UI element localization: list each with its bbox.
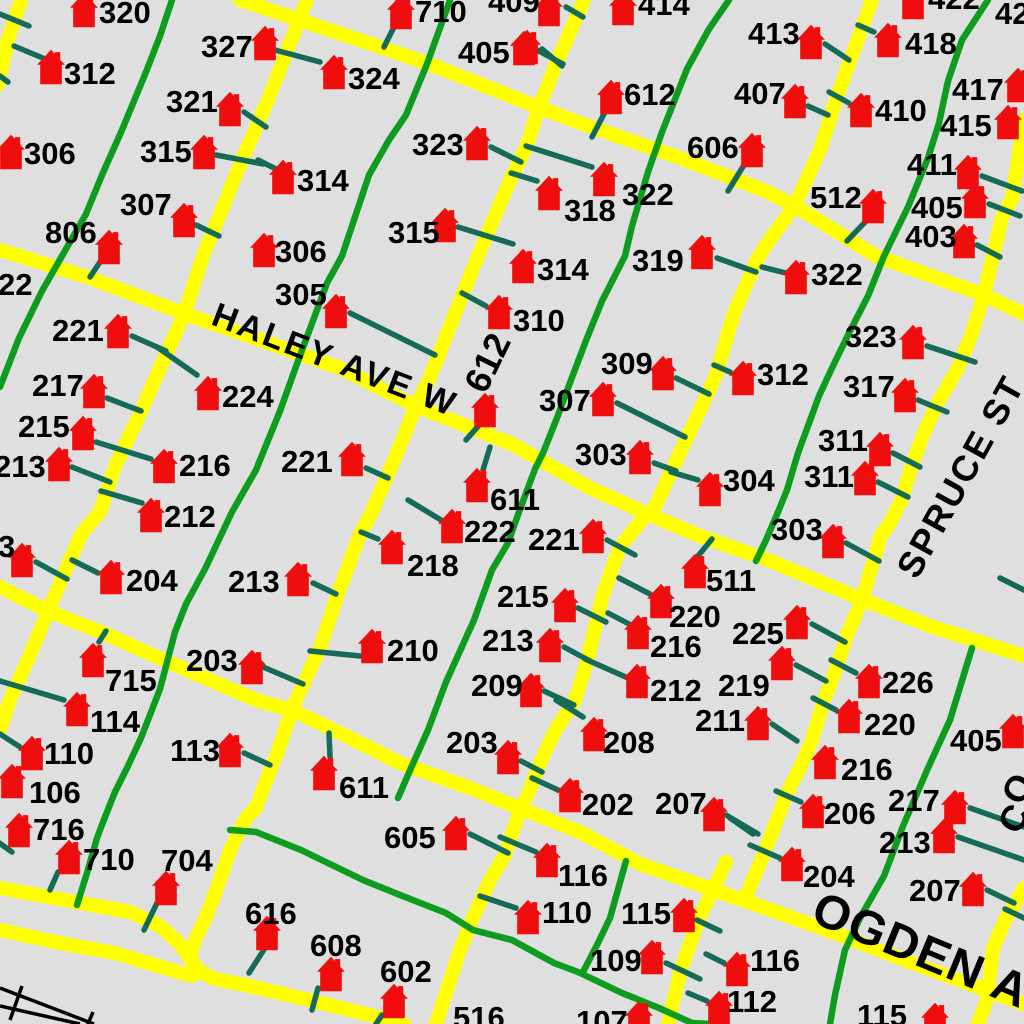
svg-text:317: 317 [843,369,895,404]
svg-text:321: 321 [166,84,218,119]
svg-text:511: 511 [706,563,756,598]
svg-text:220: 220 [864,707,916,742]
svg-text:611: 611 [490,482,540,517]
svg-text:315: 315 [140,134,192,169]
svg-text:322: 322 [811,257,863,292]
svg-text:602: 602 [380,954,432,989]
svg-text:608: 608 [310,928,362,963]
svg-text:202: 202 [582,787,634,822]
svg-text:422: 422 [928,0,980,16]
svg-text:115: 115 [857,998,907,1024]
svg-text:612: 612 [624,77,676,112]
svg-text:213: 213 [228,564,280,599]
svg-text:715: 715 [105,663,157,698]
svg-text:304: 304 [723,463,775,498]
svg-text:3: 3 [0,529,15,564]
svg-text:405: 405 [458,35,510,70]
svg-text:215: 215 [18,409,70,444]
svg-text:318: 318 [564,193,616,228]
svg-text:207: 207 [909,873,961,908]
svg-text:216: 216 [841,752,893,787]
svg-text:216: 216 [650,629,702,664]
svg-text:221: 221 [52,313,104,348]
svg-text:42: 42 [995,0,1024,31]
svg-text:418: 418 [905,26,957,61]
svg-text:115: 115 [621,896,671,931]
svg-text:323: 323 [412,127,464,162]
svg-text:417: 417 [952,72,1004,107]
svg-text:605: 605 [384,820,436,855]
svg-text:306: 306 [275,234,327,269]
svg-text:224: 224 [222,379,274,414]
svg-text:309: 309 [601,346,653,381]
svg-text:409: 409 [488,0,540,19]
svg-text:413: 413 [748,16,800,51]
svg-text:322: 322 [622,177,674,212]
svg-text:327: 327 [201,29,253,64]
svg-text:225: 225 [732,616,784,651]
svg-text:324: 324 [348,61,400,96]
svg-text:611: 611 [339,770,389,805]
svg-text:307: 307 [120,187,172,222]
svg-text:516: 516 [453,1000,505,1024]
svg-text:704: 704 [161,843,213,878]
svg-text:208: 208 [603,725,655,760]
svg-text:310: 310 [513,303,565,338]
svg-text:206: 206 [824,796,876,831]
svg-text:415: 415 [940,108,992,143]
svg-text:319: 319 [632,243,684,278]
svg-text:213: 213 [482,623,534,658]
svg-text:222: 222 [464,514,516,549]
svg-text:113: 113 [170,733,220,768]
svg-text:213: 213 [879,825,931,860]
svg-text:314: 314 [297,163,349,198]
svg-text:710: 710 [415,0,467,29]
svg-text:217: 217 [888,783,940,818]
svg-text:116: 116 [750,943,800,978]
svg-text:311: 311 [818,423,868,458]
svg-text:221: 221 [528,522,580,557]
svg-text:305: 305 [275,277,327,312]
svg-text:303: 303 [771,512,823,547]
svg-text:218: 218 [407,548,459,583]
svg-text:216: 216 [179,448,231,483]
svg-text:210: 210 [387,633,439,668]
svg-text:303: 303 [575,437,627,472]
svg-text:411: 411 [907,147,957,182]
svg-text:212: 212 [650,673,702,708]
svg-text:405: 405 [950,723,1002,758]
svg-text:414: 414 [638,0,690,22]
svg-text:107: 107 [576,1004,628,1024]
svg-text:112: 112 [727,984,777,1019]
svg-text:403: 403 [905,219,957,254]
svg-text:806: 806 [45,215,97,250]
svg-text:306: 306 [24,136,76,171]
svg-text:606: 606 [687,130,739,165]
svg-text:323: 323 [845,319,897,354]
svg-text:616: 616 [245,896,297,931]
svg-text:217: 217 [32,368,84,403]
svg-text:221: 221 [281,444,333,479]
svg-text:203: 203 [186,643,238,678]
svg-text:207: 207 [655,786,707,821]
svg-text:312: 312 [757,357,809,392]
svg-text:204: 204 [126,563,178,598]
svg-text:116: 116 [558,858,608,893]
svg-text:312: 312 [64,56,116,91]
svg-text:315: 315 [388,215,440,250]
svg-text:203: 203 [446,725,498,760]
svg-text:22: 22 [0,267,32,302]
svg-text:219: 219 [718,668,770,703]
svg-text:314: 314 [537,252,589,287]
svg-text:410: 410 [875,93,927,128]
svg-text:407: 407 [734,76,786,111]
svg-text:710: 710 [83,842,135,877]
svg-text:211: 211 [695,703,745,738]
svg-text:311: 311 [804,459,854,494]
svg-text:212: 212 [164,499,216,534]
svg-text:215: 215 [497,579,549,614]
svg-text:213: 213 [0,449,46,484]
svg-text:226: 226 [882,665,934,700]
svg-text:106: 106 [29,775,81,810]
svg-text:109: 109 [590,943,642,978]
svg-text:320: 320 [99,0,151,30]
svg-text:512: 512 [810,180,862,215]
svg-text:716: 716 [33,812,85,847]
svg-text:110: 110 [542,895,592,930]
svg-text:110: 110 [44,736,94,771]
svg-text:307: 307 [539,383,591,418]
svg-text:209: 209 [471,668,523,703]
svg-text:114: 114 [90,704,141,739]
